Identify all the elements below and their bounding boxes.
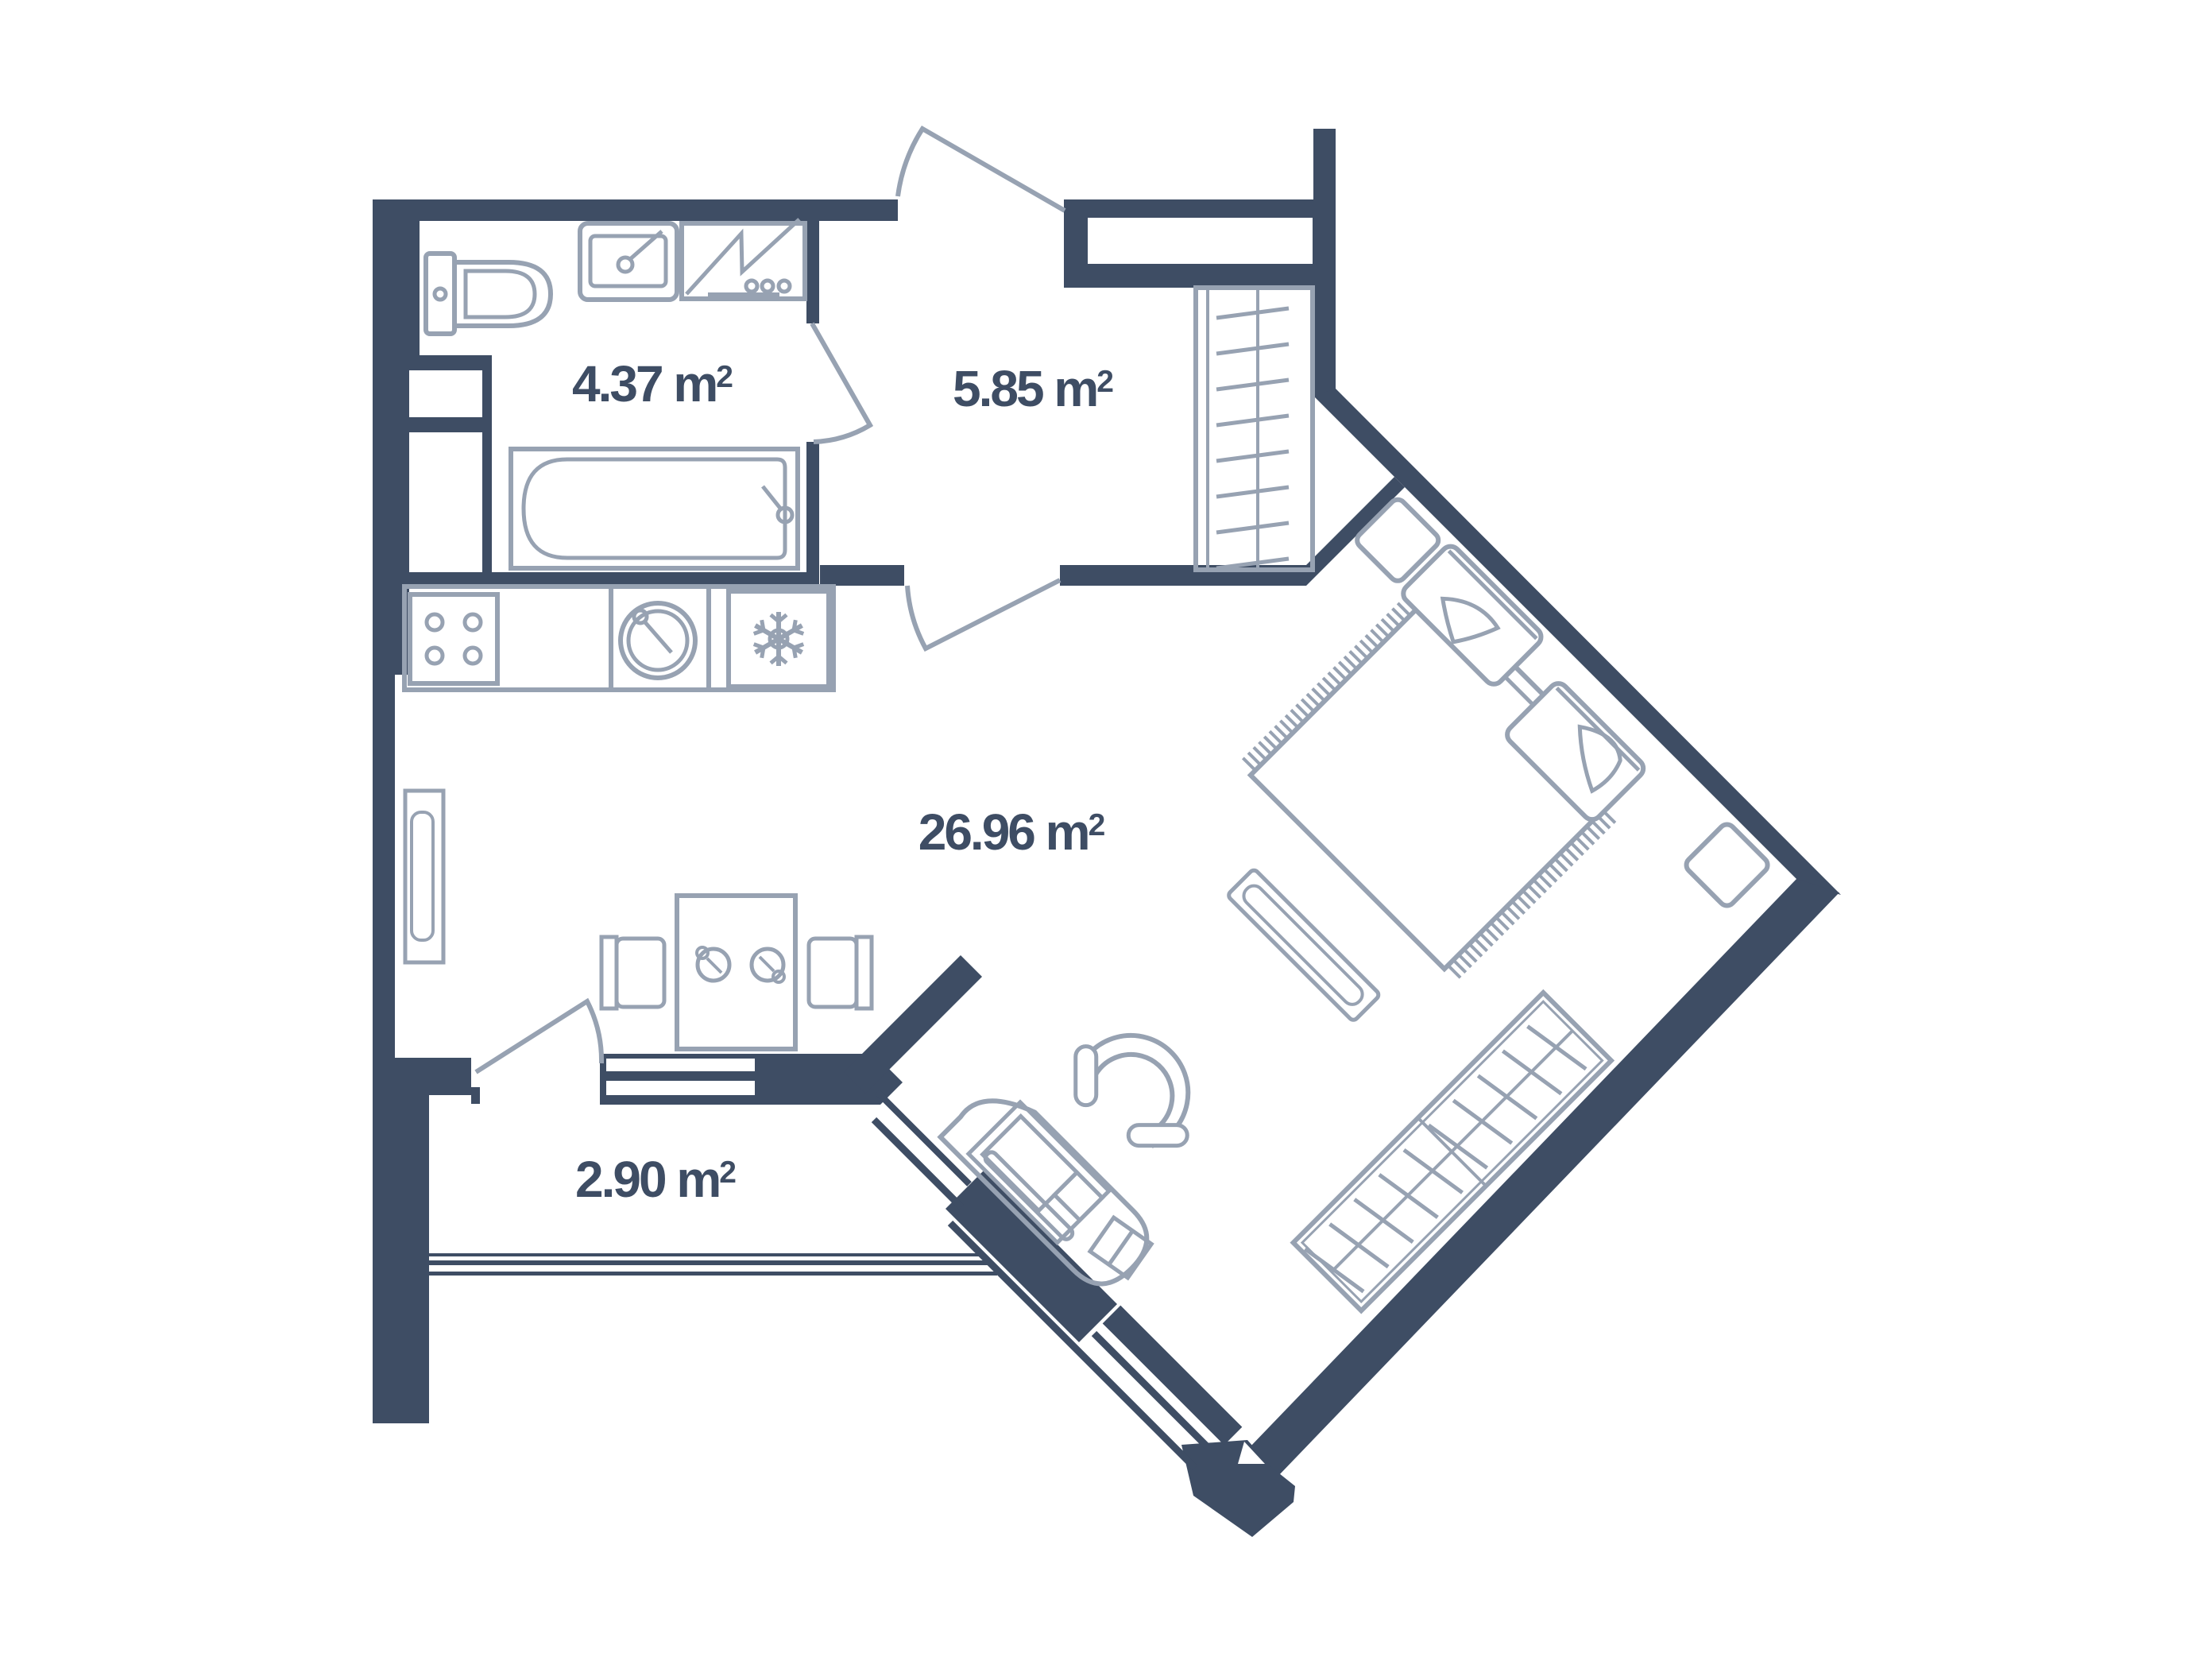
svg-text:5.85 m2: 5.85 m2 <box>953 360 1113 417</box>
svg-text:26.96 m2: 26.96 m2 <box>918 803 1105 861</box>
svg-text:2.90 m2: 2.90 m2 <box>575 1151 736 1208</box>
svg-text:4.37 m2: 4.37 m2 <box>572 355 733 412</box>
